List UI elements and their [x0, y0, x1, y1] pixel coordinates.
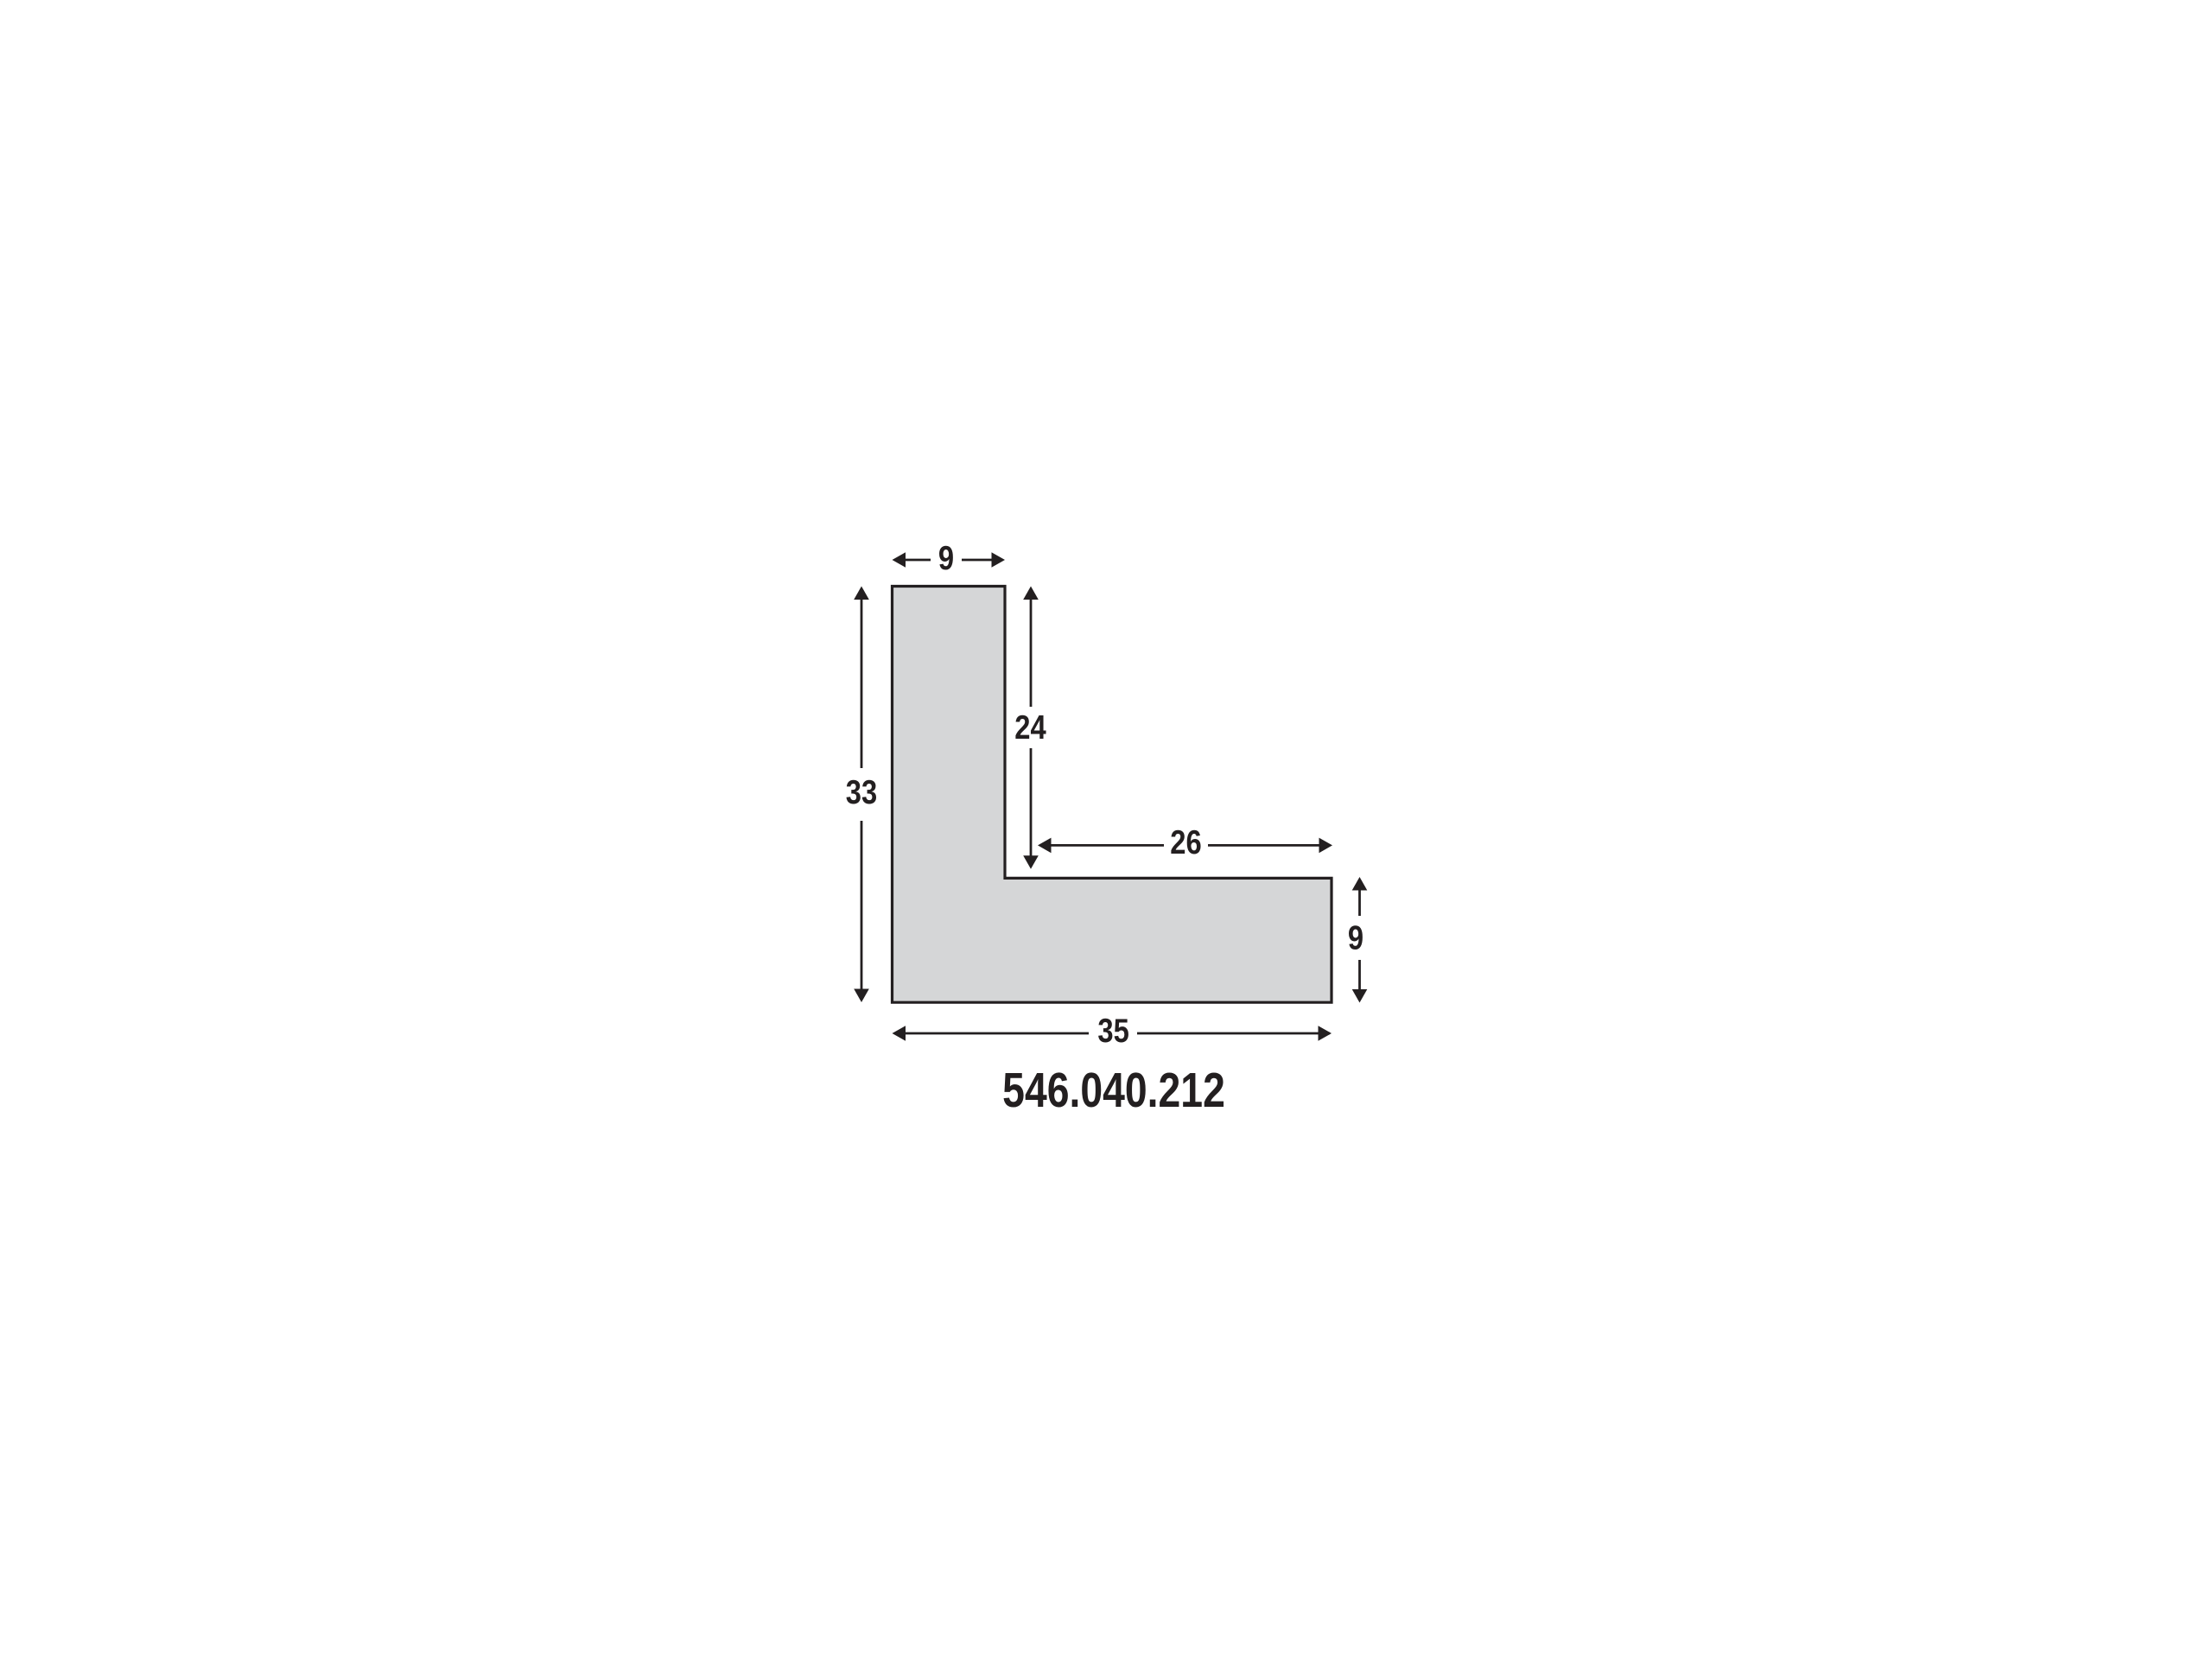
svg-text:9: 9 — [938, 538, 954, 576]
svg-text:33: 33 — [846, 772, 877, 810]
svg-text:26: 26 — [1170, 823, 1201, 861]
svg-text:35: 35 — [1097, 1011, 1128, 1049]
svg-text:24: 24 — [1014, 708, 1046, 746]
svg-text:9: 9 — [1348, 918, 1363, 956]
svg-text:546.040.212: 546.040.212 — [1002, 1064, 1225, 1119]
